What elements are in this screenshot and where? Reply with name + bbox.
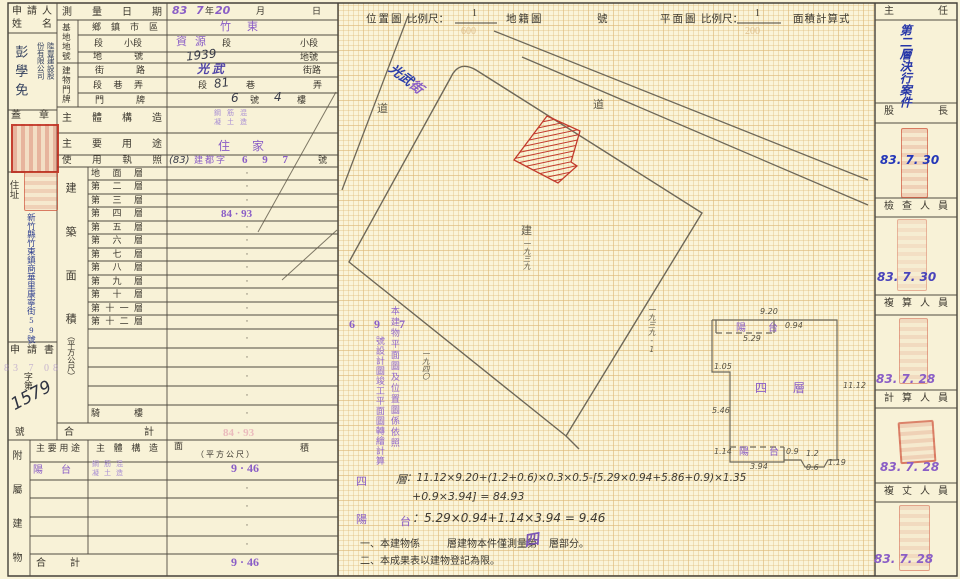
survey-day-value: 20 <box>215 5 230 17</box>
cadastral-map-label: 地籍圖 <box>506 14 544 26</box>
survey-month-value: 7 <box>196 5 204 17</box>
file-number: 1579 <box>8 378 55 415</box>
floor-row-value: · <box>230 223 264 233</box>
usage-label: 主要用途 <box>62 139 162 150</box>
applicant-red-seal <box>11 124 59 173</box>
floor-row-label: 第十層 <box>91 290 143 300</box>
applicant-company-col1: 陸豐建設股 <box>46 42 54 92</box>
floor-row-value: · <box>230 372 264 382</box>
left-form-grid-lines <box>8 3 338 576</box>
annex-total-value: 9 · 46 <box>231 556 259 569</box>
road-label-left: 道 <box>377 103 388 115</box>
annex-structure-header: 主體構造 <box>96 444 158 454</box>
dim-top-width: 9.20 <box>760 308 778 317</box>
floor-row-value: · <box>230 169 264 179</box>
floor-row-value: · <box>230 353 264 363</box>
survey-year-value: 83 <box>172 5 187 17</box>
formula2-line: ：5.29×0.94+1.14×3.94 = 9.46 <box>412 512 605 525</box>
location-scale-label: 比例尺： <box>407 14 449 26</box>
dim-balcony-width-bottom: 3.94 <box>750 463 768 472</box>
plate-street-label: 街路 <box>95 66 145 76</box>
floor-total-value-faint: 84 · 93 <box>223 427 254 439</box>
formula1-label: 四 <box>356 476 367 488</box>
structure-stamp-line2: 凝土造 <box>214 119 253 127</box>
floor-row-value: · <box>230 250 264 260</box>
lot-building-mark: 建 <box>521 225 532 237</box>
license-suffix: 號 <box>318 156 327 166</box>
floorplan-scale-denominator: 200 <box>745 26 760 37</box>
note-license-number: 6 9 7 <box>349 318 413 331</box>
cadastral-no-label: 號 <box>597 14 608 26</box>
structure-label: 主體構造 <box>62 113 162 124</box>
faint-received-date: 83 7 08 <box>4 363 62 374</box>
unit-month: 月 <box>256 7 265 17</box>
section-chief-date: 83. 7. 30 <box>880 154 939 167</box>
road-label-right: 道 <box>593 99 604 111</box>
floor-row-value: · <box>230 263 264 273</box>
formula2-label: 陽 <box>356 514 367 526</box>
note2: 二、本成果表以建物登記為限。 <box>360 556 500 567</box>
application-label: 申請書 <box>10 345 54 356</box>
floor-row-value: · <box>230 409 264 419</box>
approval-title-inspector: 檢查人員 <box>884 201 948 212</box>
floor-row-label: 第十一層 <box>91 304 143 314</box>
floor-total-label: 合計 <box>64 427 154 438</box>
annex-use-header: 主要用途 <box>36 444 80 454</box>
formula2-label2: 台 <box>400 516 411 528</box>
dim-balcony-left: 1.14 <box>714 448 732 457</box>
structure-stamp-line1: 鋼筋混 <box>214 110 253 118</box>
license-label: 使用執照 <box>62 156 162 166</box>
plate-door-unit2: 樓 <box>297 96 306 106</box>
residence-label: 住址 <box>7 180 17 210</box>
annex-balcony-use: 陽台 <box>33 465 89 476</box>
floor-row-value: · <box>230 391 264 401</box>
plate-lane-unit1: 段 <box>198 81 207 91</box>
annex-area-header-left: 面 <box>174 442 183 452</box>
floorplan-scale-numerator: 1 <box>755 8 760 19</box>
lot-number-left: 一九四〇 <box>421 350 429 382</box>
plate-lane-value: 81 <box>213 76 230 91</box>
dim-notch-bottom: 0.6 <box>806 464 819 473</box>
formula1-line1: ：11.12×9.20+(1.2+0.6)×0.3×0.5-[5.29×0.94… <box>406 473 746 485</box>
plate-door-label: 門牌 <box>95 96 145 106</box>
floor-row-value: · <box>230 277 264 287</box>
annex-row-value: · <box>230 540 264 550</box>
approval-title-recheck-staff: 複算人員 <box>884 298 948 309</box>
license-type: 建都字 <box>194 156 227 166</box>
residence-red-seal <box>24 172 58 211</box>
annex-total-label: 合計 <box>36 558 80 569</box>
file-number-suffix: 號 <box>15 428 25 438</box>
floor-area-group-unit: （平方公尺） <box>66 332 75 418</box>
dim-notch-top: 1.2 <box>806 450 819 459</box>
recheck-date: 83. 7. 28 <box>876 373 935 386</box>
floor-row-label: 第三層 <box>91 196 143 206</box>
site-lotno-label: 地號 <box>93 52 143 62</box>
floor-level-label: 四層 <box>755 382 831 395</box>
floor-row-label: 第四層 <box>91 209 143 219</box>
survey-date-label: 測量日期 <box>62 7 162 18</box>
annex-balcony-area: 9 · 46 <box>231 462 259 475</box>
lot-number-main: 一九三九 <box>522 240 530 278</box>
director-handwritten-note: 第二層決行案件 <box>898 24 911 100</box>
applicant-header-line2: 姓名 <box>12 19 52 30</box>
note1-part-c: 層部分。 <box>549 539 589 550</box>
site-group-label: 基地地號 <box>61 23 70 60</box>
unit-day: 日 <box>312 7 321 17</box>
lot-number-right: 一九三九-1 <box>647 306 655 356</box>
floor-row-label: 地面層 <box>91 169 143 179</box>
note-stamp-column-a: 本建物平面圖及位置圖係依照 <box>389 306 399 478</box>
strike-lines <box>258 92 337 280</box>
applicant-company-col2: 份有限公司 <box>36 42 44 92</box>
dim-balcony-right: 0.9 <box>786 448 799 457</box>
annex-structure-stamp-line1: 鋼筋混 <box>92 461 128 469</box>
site-section-unit1: 段 <box>222 39 231 49</box>
annex-structure-stamp-line2: 凝土造 <box>92 470 128 478</box>
note1-handwritten-floor: 四 <box>523 531 541 550</box>
usage-value: 住家 <box>218 140 286 153</box>
floor-row-value: · <box>230 236 264 246</box>
plate-lane-label: 段巷弄 <box>93 81 143 91</box>
annex-row-value: · <box>230 521 264 531</box>
approval-title-calculator: 計算人員 <box>884 393 948 404</box>
license-number: 6 9 7 <box>242 154 294 166</box>
unit-year: 年 <box>205 7 214 17</box>
floor-row-label: 第八層 <box>91 263 143 273</box>
applicant-address: 新竹縣竹東鎮商華里康寧街59號 <box>26 213 35 348</box>
floor-row-value: · <box>230 196 264 206</box>
calculator-date: 83. 7. 28 <box>880 461 939 474</box>
floor-row-label: 第十二層 <box>91 317 143 327</box>
site-district-value: 竹東 <box>220 21 274 33</box>
plate-street-value: 光武 <box>197 63 227 76</box>
arcade-row-label: 騎樓 <box>91 409 143 419</box>
dim-left-lower: 5.46 <box>712 407 730 416</box>
calculator-red-seal <box>898 420 937 464</box>
annex-area-header-unit: （ 平 方 公 尺 ） <box>196 451 254 460</box>
site-section-label2: 小段 <box>124 39 142 49</box>
seal-label: 蓋章 <box>11 110 49 121</box>
applicant-name: 彭學免 <box>13 45 27 107</box>
approval-title-section-chief: 股長 <box>884 106 948 117</box>
site-district-label: 鄉鎮市區 <box>92 23 158 33</box>
location-map-title: 位置圖 <box>366 14 404 26</box>
plate-lane-unit2: 巷 <box>246 81 255 91</box>
location-scale-denominator: 600 <box>461 26 476 37</box>
location-scale-numerator: 1 <box>472 8 477 19</box>
floor-row-value: · <box>230 304 264 314</box>
floor-row-label: 第七層 <box>91 250 143 260</box>
plate-group-label: 建物門牌 <box>61 66 70 103</box>
annex-row-value: · <box>230 484 264 494</box>
plate-street-unit: 街路 <box>303 66 321 76</box>
floor-row-label: 第九層 <box>91 277 143 287</box>
floor4-area-value: 84 · 93 <box>221 208 252 220</box>
annex-group-label: 附屬建物 <box>10 450 21 562</box>
floor-row-value: · <box>230 290 264 300</box>
approval-title-surveyor: 複丈人員 <box>884 486 948 497</box>
site-lotno-unit: 地號 <box>300 53 318 63</box>
survey-form-sheet: 申請人 姓名 彭學免 陸豐建設股 份有限公司 蓋章 住址 新竹縣竹東鎮商華里康寧… <box>0 0 960 579</box>
formula1-line2: +0.9×3.94] = 84.93 <box>412 491 524 503</box>
floor-row-label: 第五層 <box>91 223 143 233</box>
floor-row-label: 第六層 <box>91 236 143 246</box>
license-prefix: (83) <box>169 155 190 166</box>
dim-balcony-depth-top: 0.94 <box>785 322 803 331</box>
plate-door-unit1: 號 <box>250 96 259 106</box>
site-section-label1: 段 <box>94 39 103 49</box>
dim-right-height: 11.12 <box>843 382 866 391</box>
floor-area-group-label: 建築面積 <box>64 182 76 324</box>
floor-row-label: 第二層 <box>91 182 143 192</box>
annex-area-header-right: 積 <box>300 444 309 454</box>
area-calc-label: 面積計算式 <box>793 14 851 26</box>
dim-corner: 1.19 <box>828 459 846 468</box>
floor-row-value: · <box>230 182 264 192</box>
note1-part-a: 一、本建物係 <box>360 539 420 550</box>
plate-lane-unit3: 弄 <box>313 81 322 91</box>
plate-door-value2: 4 <box>274 91 282 104</box>
plate-door-value1: 6 <box>231 92 239 105</box>
floor-row-value: · <box>230 317 264 327</box>
floorplan-scale-label: 比例尺： <box>701 14 743 26</box>
annex-row-value: · <box>230 502 264 512</box>
dim-balcony-width-top: 5.29 <box>743 335 761 344</box>
site-section-unit2: 小段 <box>300 39 318 49</box>
floor-row-value: · <box>230 334 264 344</box>
applicant-header-line1: 申請人 <box>12 6 52 17</box>
inspector-date: 83. 7. 30 <box>877 271 936 284</box>
dim-left-step: 1.05 <box>714 363 732 372</box>
surveyor-date: 83. 7. 28 <box>874 553 933 566</box>
note-stamp-column-b: 號設計圖竣工平面圖轉繪計算 <box>374 336 384 482</box>
floorplan-title: 平面圖 <box>660 14 698 26</box>
approval-title-director: 主任 <box>884 6 948 17</box>
